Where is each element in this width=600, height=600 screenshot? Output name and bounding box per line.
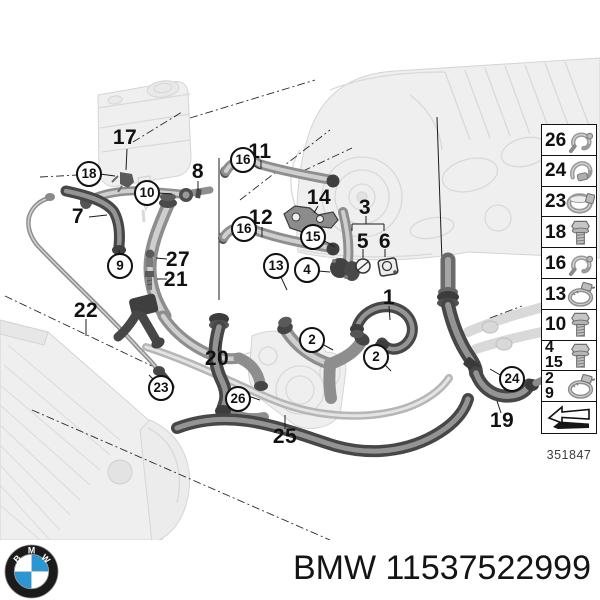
legend-box-4-15: 415 bbox=[541, 340, 597, 372]
legend-box-2-9: 29 bbox=[541, 370, 597, 402]
callout-14: 14 bbox=[307, 186, 331, 210]
fasteners-legend: 2624231816131041529 bbox=[541, 124, 597, 434]
direction-arrow-icon bbox=[545, 403, 595, 431]
callout-7: 7 bbox=[72, 205, 84, 229]
callout-5: 5 bbox=[357, 230, 369, 254]
legend-box-23: 23 bbox=[541, 186, 597, 218]
bolt-icon bbox=[566, 218, 595, 247]
callout-16: 16 bbox=[231, 216, 257, 242]
callout-23: 23 bbox=[148, 375, 174, 401]
legend-numbers: 16 bbox=[545, 254, 566, 273]
bmw-logo: B M W bbox=[4, 544, 59, 599]
legend-box-arrow bbox=[541, 401, 597, 433]
bolt-icon bbox=[566, 341, 595, 370]
callout-2: 2 bbox=[299, 327, 325, 353]
callout-26: 26 bbox=[225, 386, 251, 412]
cooling-hoses-diagram: 1718108792721222320262511161216131415356… bbox=[0, 0, 600, 540]
legend-numbers: 23 bbox=[545, 192, 566, 211]
part-number-caption: BMW 11537522999 bbox=[293, 549, 591, 588]
legend-numbers: 13 bbox=[545, 285, 566, 304]
callout-25: 25 bbox=[273, 425, 297, 449]
callout-18: 18 bbox=[76, 161, 102, 187]
callout-15: 15 bbox=[300, 224, 326, 250]
callout-6: 6 bbox=[379, 230, 391, 254]
bolt-icon bbox=[566, 310, 595, 339]
retaining-clip-icon bbox=[566, 249, 595, 278]
legend-numbers: 415 bbox=[545, 341, 563, 370]
callout-17: 17 bbox=[113, 126, 137, 150]
callout-19: 19 bbox=[490, 409, 514, 433]
callout-4: 4 bbox=[294, 257, 320, 283]
legend-numbers: 29 bbox=[545, 372, 554, 401]
drawing-number: 351847 bbox=[541, 448, 597, 462]
legend-box-10: 10 bbox=[541, 309, 597, 341]
svg-text:M: M bbox=[28, 545, 35, 555]
legend-box-13: 13 bbox=[541, 278, 597, 310]
worm-clamp-icon bbox=[566, 372, 595, 401]
callout-9: 9 bbox=[107, 253, 133, 279]
legend-box-24: 24 bbox=[541, 155, 597, 187]
callout-13: 13 bbox=[263, 253, 289, 279]
legend-numbers: 18 bbox=[545, 223, 566, 242]
legend-box-18: 18 bbox=[541, 216, 597, 248]
mounting-clip-icon bbox=[566, 156, 595, 185]
caption-bar: B M W BMW 11537522999 bbox=[0, 540, 600, 600]
callout-1: 1 bbox=[383, 286, 395, 310]
legend-box-16: 16 bbox=[541, 247, 597, 279]
callout-24: 24 bbox=[499, 366, 525, 392]
callout-21: 21 bbox=[164, 268, 188, 292]
legend-numbers: 26 bbox=[545, 131, 566, 150]
callout-3: 3 bbox=[359, 196, 371, 220]
callout-16: 16 bbox=[230, 147, 256, 173]
legend-box-26: 26 bbox=[541, 124, 597, 156]
callout-2: 2 bbox=[363, 344, 389, 370]
hose-clamp-icon bbox=[566, 187, 595, 216]
callout-layer: 1718108792721222320262511161216131415356… bbox=[0, 0, 600, 540]
callout-10: 10 bbox=[134, 180, 160, 206]
legend-numbers: 24 bbox=[545, 161, 566, 180]
callout-22: 22 bbox=[74, 299, 98, 323]
callout-8: 8 bbox=[192, 160, 204, 184]
worm-clamp-icon bbox=[566, 280, 595, 309]
retaining-clip-icon bbox=[566, 126, 595, 155]
callout-20: 20 bbox=[205, 347, 229, 371]
legend-numbers: 10 bbox=[545, 315, 566, 334]
parts-catalog-page: 1718108792721222320262511161216131415356… bbox=[0, 0, 600, 600]
